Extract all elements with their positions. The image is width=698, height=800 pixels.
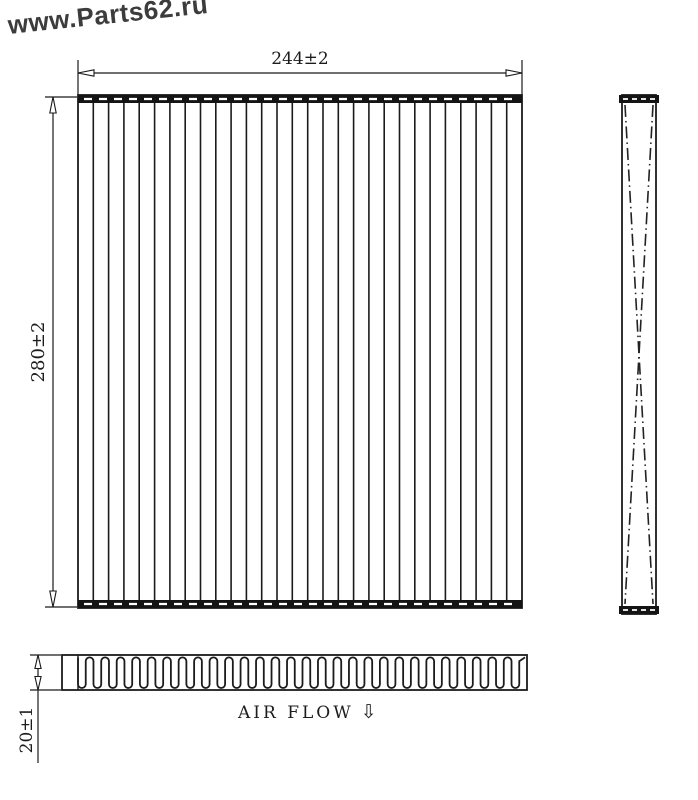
- depth-arrow-down-icon: [35, 677, 41, 691]
- front-view: [78, 95, 522, 608]
- bottom-view: [62, 655, 527, 690]
- height-arrow-down-icon: [50, 591, 56, 607]
- side-view-frame: [622, 95, 656, 614]
- width-arrow-left-icon: [78, 70, 94, 76]
- air-flow-down-arrow-icon: ⇩: [361, 701, 377, 723]
- side-view: [619, 95, 659, 614]
- depth-dimension-label: 20±1: [18, 690, 38, 770]
- width-dimension-label: 244±2: [230, 50, 370, 69]
- width-arrow-right-icon: [506, 70, 522, 76]
- technical-drawing: www.Parts62.ru 244±2 280±2 20±1 AIR FLOW…: [0, 0, 698, 800]
- drawing-canvas: [0, 0, 698, 800]
- front-view-frame: [78, 95, 522, 608]
- air-flow-text: AIR FLOW: [238, 703, 354, 723]
- depth-arrow-up-icon: [35, 655, 41, 669]
- height-arrow-up-icon: [50, 97, 56, 113]
- air-flow-annotation: AIR FLOW⇩: [238, 702, 377, 723]
- height-dimension-label: 280±2: [29, 297, 51, 407]
